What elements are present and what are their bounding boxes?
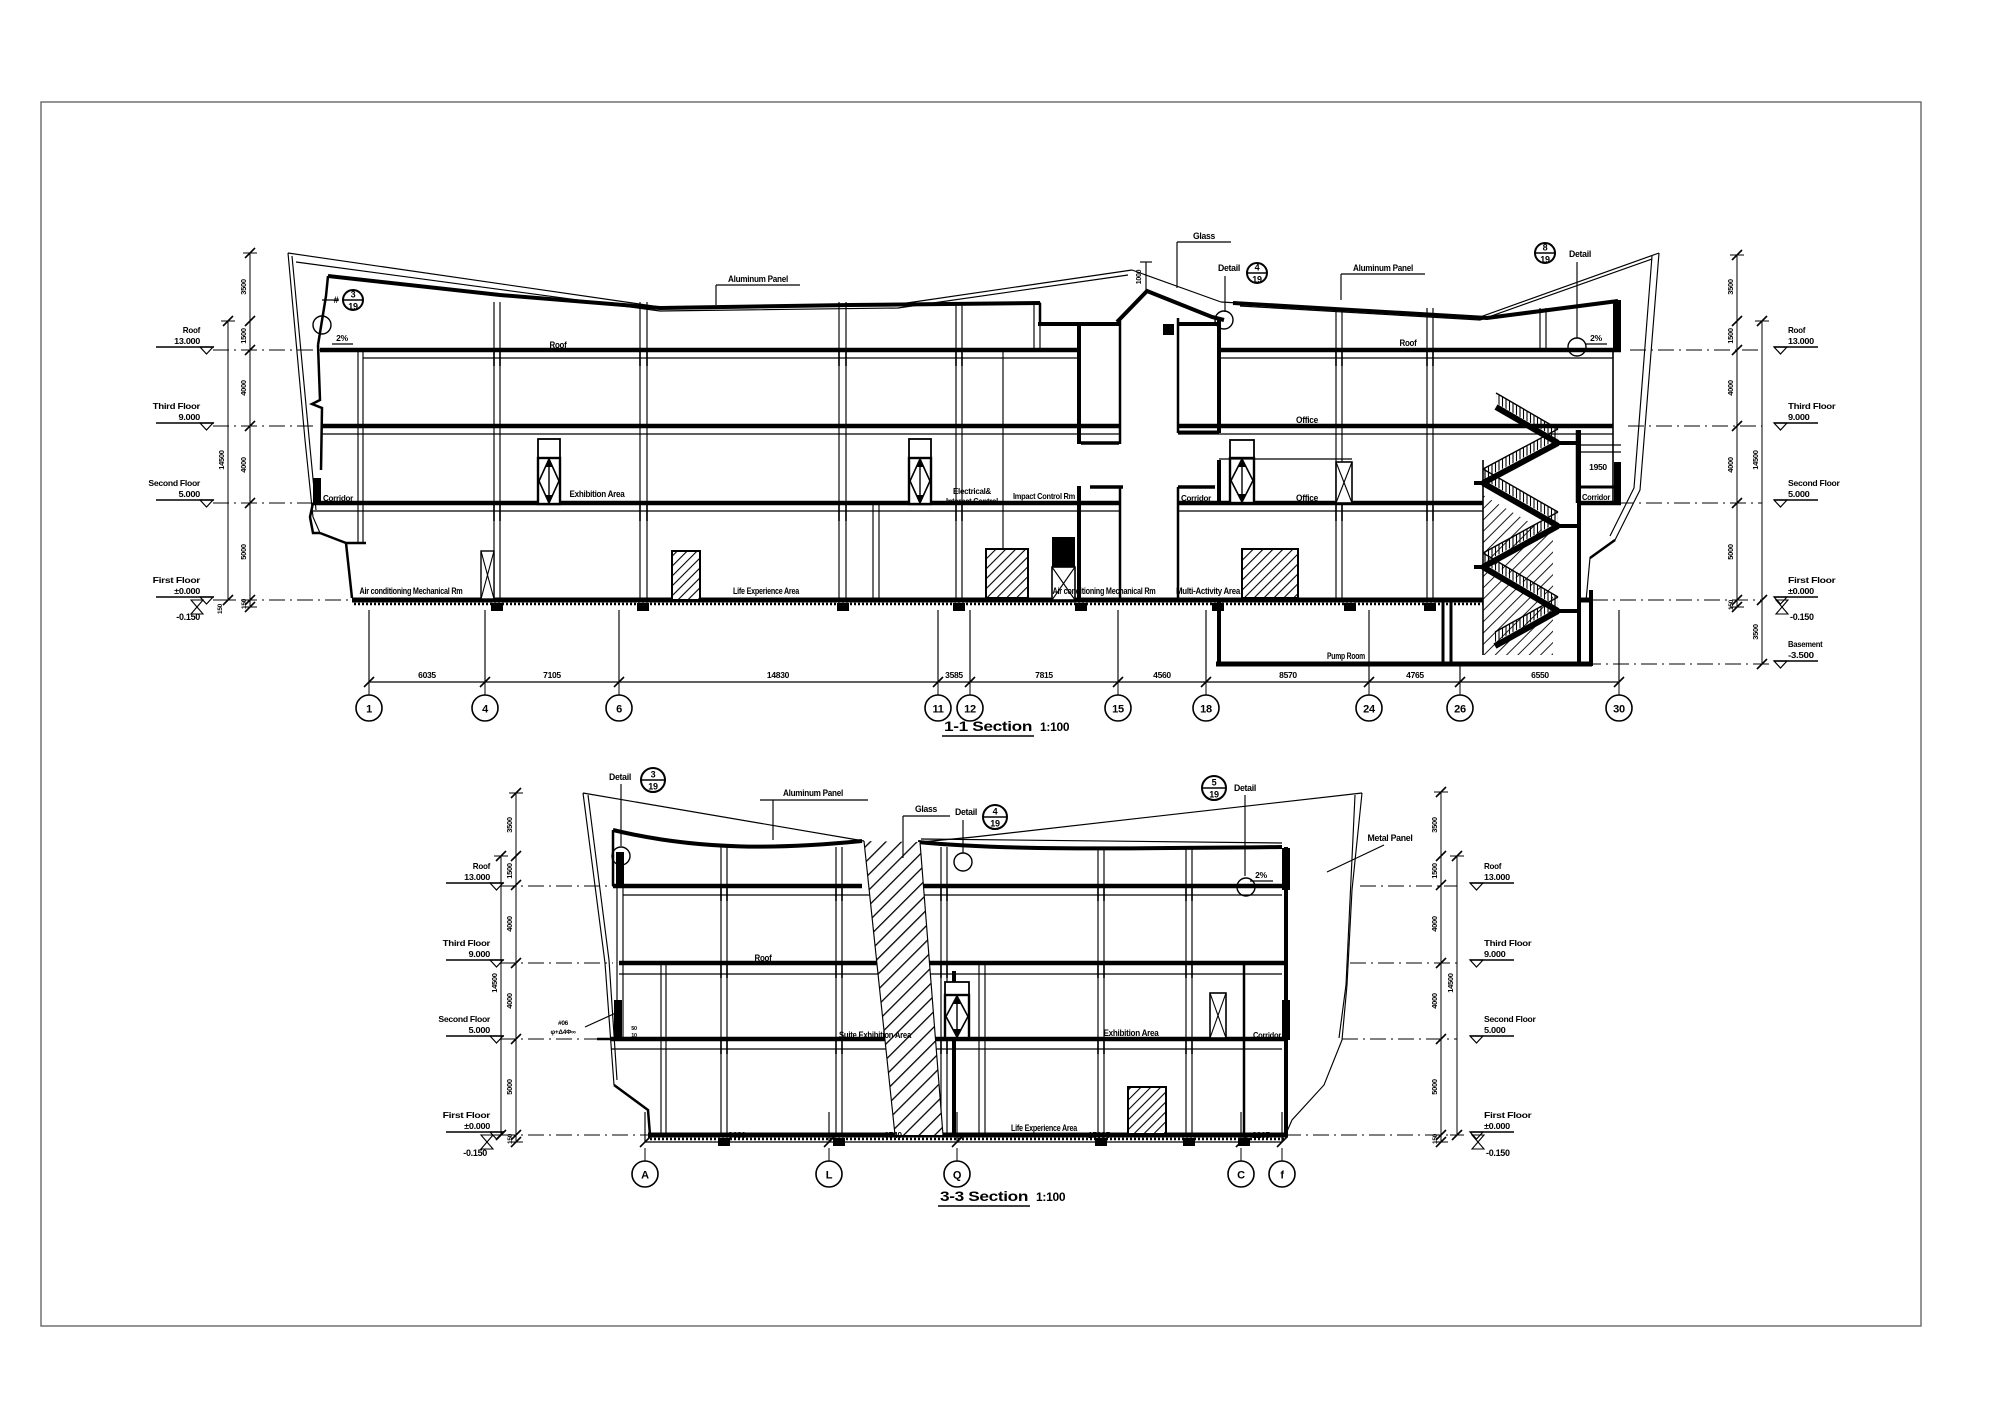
svg-text:13.000: 13.000 (174, 336, 200, 346)
svg-text:Third Floor: Third Floor (1788, 401, 1836, 411)
svg-text:Impact Control Rm: Impact Control Rm (1013, 491, 1076, 501)
svg-text:1: 1 (366, 704, 372, 716)
svg-text:Multi-Activity Area: Multi-Activity Area (1176, 586, 1241, 596)
svg-text:6550: 6550 (1531, 670, 1549, 680)
svg-text:5.000: 5.000 (1484, 1025, 1506, 1035)
svg-text:Second Floor: Second Floor (1484, 1014, 1537, 1024)
svg-text:13.000: 13.000 (1484, 872, 1510, 882)
svg-text:15: 15 (1112, 704, 1124, 716)
svg-text:-0.150: -0.150 (463, 1148, 487, 1158)
svg-text:9.000: 9.000 (1788, 412, 1810, 422)
svg-text:Corridor: Corridor (1181, 493, 1212, 503)
svg-text:26: 26 (1454, 704, 1466, 716)
svg-text:19: 19 (1540, 255, 1550, 265)
svg-text:Electrical&: Electrical& (953, 486, 991, 496)
svg-text:C: C (1237, 1170, 1245, 1182)
svg-text:7105: 7105 (543, 670, 561, 680)
svg-text:19: 19 (1252, 275, 1262, 285)
svg-text:±0.000: ±0.000 (1788, 586, 1814, 596)
svg-text:3-3 Section: 3-3 Section (940, 1188, 1028, 1204)
svg-text:4: 4 (1255, 263, 1260, 273)
svg-text:Roof: Roof (550, 340, 568, 350)
svg-text:4000: 4000 (239, 457, 248, 473)
svg-text:-0.150: -0.150 (1486, 1148, 1510, 1158)
svg-text:3500: 3500 (239, 279, 248, 295)
svg-text:3: 3 (351, 290, 356, 300)
svg-text:4560: 4560 (1153, 670, 1171, 680)
svg-text:-0.150: -0.150 (1790, 612, 1814, 622)
svg-text:150: 150 (1728, 599, 1735, 610)
svg-text:7815: 7815 (1035, 670, 1053, 680)
svg-text:13.000: 13.000 (1788, 336, 1814, 346)
svg-text:Exhibition Area: Exhibition Area (1104, 1028, 1160, 1038)
svg-text:1500: 1500 (1726, 328, 1735, 344)
svg-text:Corridor: Corridor (1253, 1031, 1281, 1040)
svg-text:24: 24 (1363, 704, 1376, 716)
svg-text:2%: 2% (1590, 333, 1602, 343)
svg-text:14500: 14500 (1446, 973, 1455, 992)
svg-text:3500: 3500 (1726, 279, 1735, 295)
svg-text:#06: #06 (558, 1020, 569, 1027)
svg-text:Suite Exhibition Area: Suite Exhibition Area (839, 1030, 912, 1040)
svg-text:Office: Office (1296, 415, 1318, 425)
svg-text:5000: 5000 (1430, 1079, 1439, 1095)
svg-text:Detail: Detail (1234, 783, 1256, 793)
svg-text:Third Floor: Third Floor (1484, 938, 1532, 948)
svg-text:6540: 6540 (884, 1130, 902, 1140)
svg-text:Roof: Roof (183, 325, 201, 335)
svg-text:Life Experience Area: Life Experience Area (733, 586, 800, 596)
svg-text:Pump Room: Pump Room (1327, 651, 1365, 661)
svg-text:4000: 4000 (1726, 457, 1735, 473)
svg-text:5000: 5000 (505, 1079, 514, 1095)
svg-text:Corridor: Corridor (1582, 493, 1610, 502)
svg-text:9.000: 9.000 (1484, 949, 1506, 959)
svg-text:3585: 3585 (945, 670, 963, 680)
svg-text:#: # (334, 295, 339, 305)
svg-text:First Floor: First Floor (1788, 575, 1837, 585)
svg-text:150: 150 (1432, 1133, 1439, 1144)
svg-text:Exhibition Area: Exhibition Area (570, 489, 626, 499)
svg-text:First Floor: First Floor (153, 575, 202, 585)
svg-text:150: 150 (507, 1133, 514, 1144)
svg-text:4765: 4765 (1406, 670, 1424, 680)
svg-text:50: 50 (631, 1026, 637, 1032)
svg-text:18: 18 (1200, 704, 1212, 716)
svg-text:Corridor: Corridor (323, 493, 354, 503)
svg-text:12: 12 (964, 704, 976, 716)
svg-text:Q: Q (953, 1170, 962, 1182)
svg-text:14500: 14500 (1751, 450, 1760, 469)
svg-text:A: A (641, 1170, 649, 1182)
svg-text:6: 6 (616, 704, 622, 716)
svg-text:Third Floor: Third Floor (153, 401, 201, 411)
svg-text:-0.150: -0.150 (176, 612, 200, 622)
svg-text:Roof: Roof (755, 953, 773, 963)
svg-text:Roof: Roof (1484, 861, 1502, 871)
svg-text:2%: 2% (336, 333, 348, 343)
svg-text:9.000: 9.000 (469, 949, 491, 959)
svg-text:Detail: Detail (955, 807, 977, 817)
svg-text:Detail: Detail (609, 772, 631, 782)
svg-text:Air conditioning Mechanical Rm: Air conditioning Mechanical Rm (1053, 586, 1156, 596)
svg-text:Detail: Detail (1569, 249, 1591, 259)
svg-text:±0.000: ±0.000 (464, 1121, 490, 1131)
svg-text:Glass: Glass (1193, 231, 1215, 241)
svg-text:Metal Panel: Metal Panel (1368, 833, 1413, 843)
svg-text:5000: 5000 (239, 544, 248, 560)
svg-text:30: 30 (1613, 704, 1625, 716)
svg-text:Aluminum Panel: Aluminum Panel (783, 788, 843, 798)
svg-text:Internet Control: Internet Control (946, 496, 998, 506)
svg-text:Aluminum Panel: Aluminum Panel (1353, 263, 1413, 273)
svg-text:Second Floor: Second Floor (148, 478, 201, 488)
svg-text:1000: 1000 (1136, 269, 1143, 284)
svg-text:1-1 Section: 1-1 Section (944, 718, 1032, 734)
svg-text:Office: Office (1296, 493, 1318, 503)
svg-text:±0.000: ±0.000 (174, 586, 200, 596)
svg-text:8570: 8570 (1279, 670, 1297, 680)
svg-text:15085: 15085 (1088, 1130, 1111, 1140)
svg-text:Aluminum Panel: Aluminum Panel (728, 274, 788, 284)
svg-text:1500: 1500 (1430, 863, 1439, 879)
svg-text:3: 3 (651, 770, 656, 780)
svg-text:φ+Δ4Φ∞: φ+Δ4Φ∞ (551, 1029, 577, 1036)
svg-text:10: 10 (631, 1033, 637, 1039)
svg-text:9630: 9630 (728, 1130, 746, 1140)
svg-text:9.000: 9.000 (179, 412, 201, 422)
svg-text:5.000: 5.000 (179, 489, 201, 499)
svg-text:5: 5 (1212, 778, 1217, 788)
svg-text:5.000: 5.000 (1788, 489, 1810, 499)
svg-text:Air conditioning Mechanical Rm: Air conditioning Mechanical Rm (360, 586, 463, 596)
svg-text:1500: 1500 (505, 863, 514, 879)
svg-text:Third Floor: Third Floor (443, 938, 491, 948)
svg-text:19: 19 (348, 302, 358, 312)
svg-text:Detail: Detail (1218, 263, 1240, 273)
svg-text:3500: 3500 (1751, 624, 1760, 640)
svg-text:3500: 3500 (505, 817, 514, 833)
svg-text:4000: 4000 (1430, 993, 1439, 1009)
svg-text:150: 150 (241, 598, 248, 609)
svg-text:Basement: Basement (1788, 639, 1823, 649)
svg-text:-3.500: -3.500 (1788, 650, 1814, 660)
svg-text:4000: 4000 (1430, 916, 1439, 932)
svg-text:19: 19 (990, 819, 1000, 829)
svg-text:Roof: Roof (1400, 338, 1418, 348)
svg-text:4: 4 (993, 807, 998, 817)
svg-text:1500: 1500 (239, 328, 248, 344)
svg-text:1950: 1950 (1589, 462, 1607, 472)
svg-text:14830: 14830 (767, 670, 790, 680)
svg-text:First Floor: First Floor (1484, 1110, 1533, 1120)
svg-text:6035: 6035 (418, 670, 436, 680)
svg-text:4000: 4000 (505, 916, 514, 932)
svg-text:First Floor: First Floor (443, 1110, 492, 1120)
svg-text:4000: 4000 (505, 993, 514, 1009)
svg-text:L: L (826, 1170, 833, 1182)
svg-text:5.000: 5.000 (469, 1025, 491, 1035)
svg-text:Second Floor: Second Floor (1788, 478, 1841, 488)
svg-text:14500: 14500 (490, 973, 499, 992)
svg-text:2265: 2265 (1252, 1130, 1270, 1140)
svg-text:Glass: Glass (915, 804, 937, 814)
svg-text:Roof: Roof (473, 861, 491, 871)
svg-text:8: 8 (1543, 243, 1548, 253)
svg-text:4000: 4000 (1726, 380, 1735, 396)
svg-text:Life Experience Area: Life Experience Area (1011, 1123, 1078, 1133)
svg-text:Roof: Roof (1788, 325, 1806, 335)
svg-text:3500: 3500 (1430, 817, 1439, 833)
svg-text:19: 19 (1209, 790, 1219, 800)
svg-text:1:100: 1:100 (1036, 1190, 1066, 1204)
svg-text:Second Floor: Second Floor (438, 1014, 491, 1024)
svg-text:5000: 5000 (1726, 544, 1735, 560)
svg-text:11: 11 (932, 704, 943, 716)
svg-text:13.000: 13.000 (464, 872, 490, 882)
svg-text:19: 19 (648, 782, 658, 792)
svg-text:14500: 14500 (217, 450, 226, 469)
svg-text:±0.000: ±0.000 (1484, 1121, 1510, 1131)
svg-text:2%: 2% (1255, 870, 1267, 880)
svg-text:1:100: 1:100 (1040, 720, 1070, 734)
svg-text:4000: 4000 (239, 380, 248, 396)
